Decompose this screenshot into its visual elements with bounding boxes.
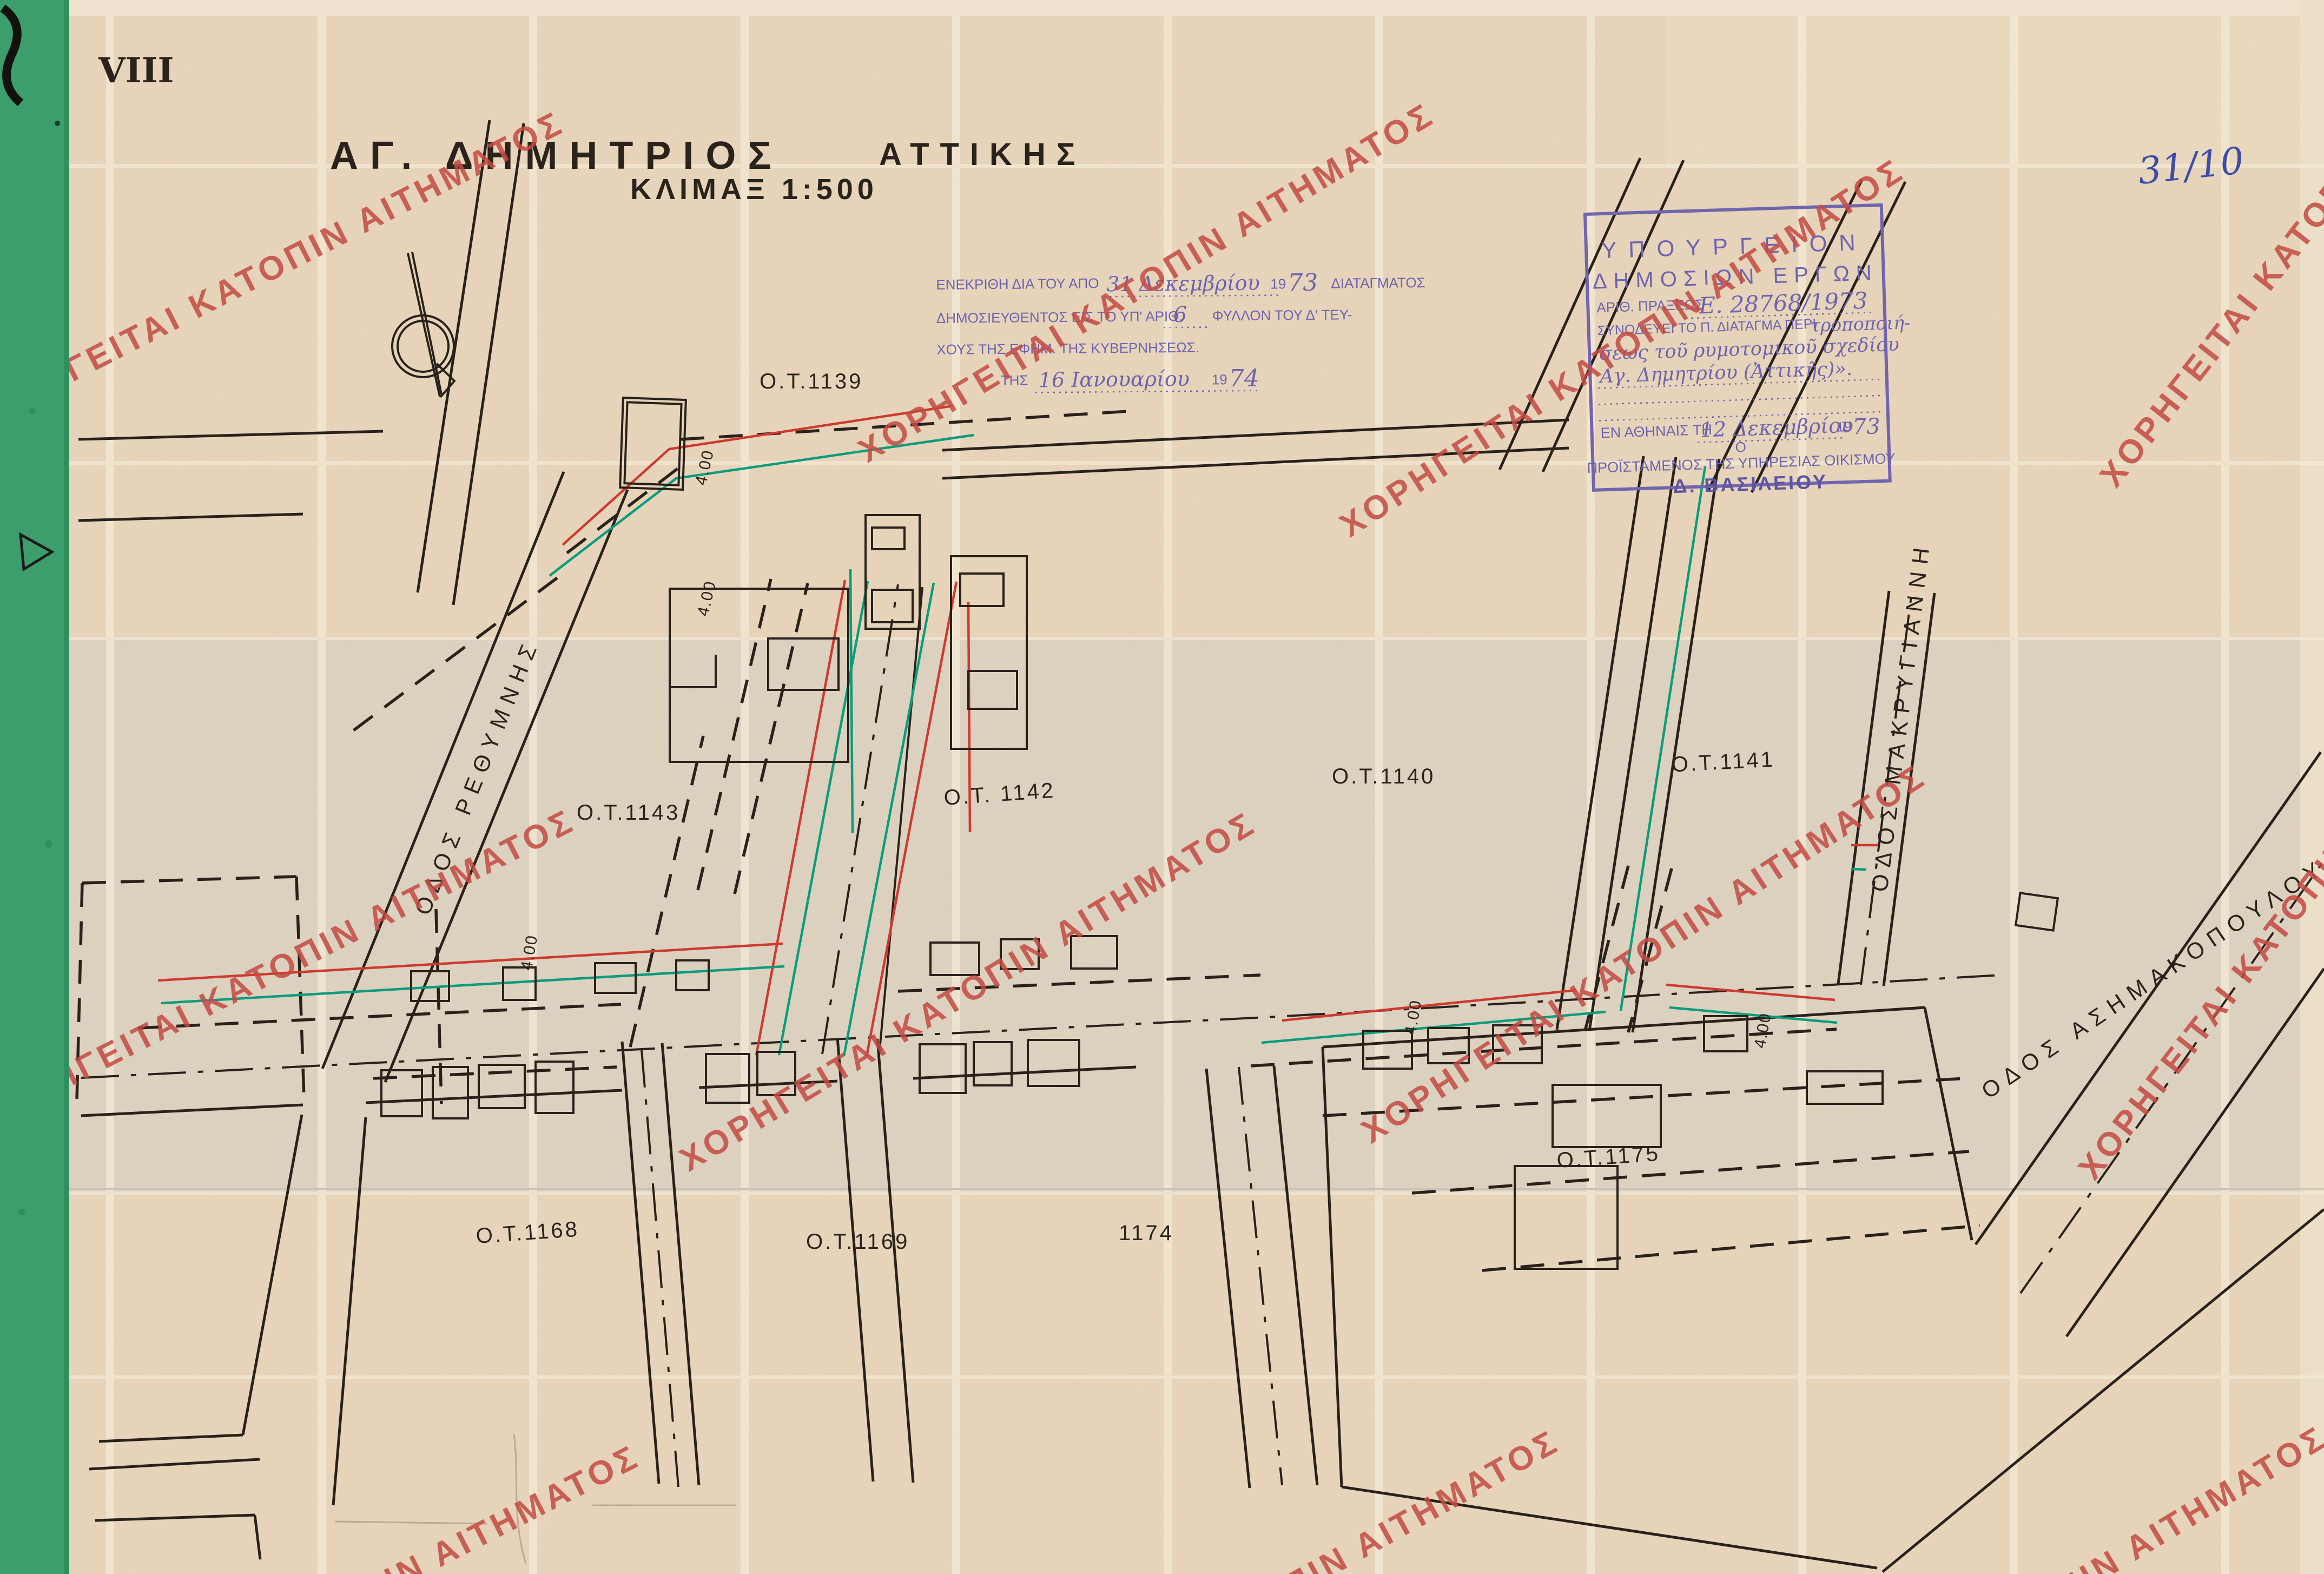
svg-text:τροποποιή-: τροποποιή- [1810, 312, 1911, 336]
block-label-1140: Ο.Τ.1140 [1332, 765, 1435, 788]
block-label-1169: Ο.Τ.1169 [806, 1230, 909, 1254]
approval-line1: ΕΝΕΚΡΙΘΗ ΔΙΑ ΤΟΥ ΑΠΟ [936, 275, 1099, 293]
block-label-1139: Ο.Τ.1139 [760, 370, 863, 393]
plan-sheet: VIII ΑΓ. ΔΗΜΗΤΡΙΟΣ ΑΤΤΙΚΗΣ ΚΛΙΜΑΞ 1:500 … [0, 0, 2324, 1574]
svg-text:19: 19 [1270, 275, 1286, 292]
binding-strip [0, 0, 69, 1574]
svg-text:73: 73 [1852, 414, 1880, 440]
svg-text:ΔΙΑΤΑΓΜΑΤΟΣ: ΔΙΑΤΑΓΜΑΤΟΣ [1331, 274, 1425, 292]
plan-canvas: VIII ΑΓ. ΔΗΜΗΤΡΙΟΣ ΑΤΤΙΚΗΣ ΚΛΙΜΑΞ 1:500 … [0, 0, 2324, 1574]
svg-text:16 Ιανουαρίου: 16 Ιανουαρίου [1039, 367, 1190, 392]
svg-text:74: 74 [1229, 365, 1259, 392]
block-label-1143: Ο.Τ.1143 [577, 801, 680, 825]
title-scale: ΚΛΙΜΑΞ 1:500 [630, 173, 878, 206]
sheet-number: VIII [98, 50, 174, 91]
svg-text:6: 6 [1173, 302, 1187, 327]
svg-text:19: 19 [1836, 419, 1852, 435]
svg-text:ΦΥΛΛΟΝ ΤΟΥ Δ' ΤΕΥ-: ΦΥΛΛΟΝ ΤΟΥ Δ' ΤΕΥ- [1212, 306, 1352, 324]
svg-text:12 Δεκεμβρίου: 12 Δεκεμβρίου [1700, 413, 1854, 442]
svg-text:73: 73 [1288, 269, 1318, 297]
title-region: ΑΤΤΙΚΗΣ [879, 137, 1086, 172]
svg-text:19: 19 [1212, 371, 1227, 387]
svg-text:Ο: Ο [1735, 439, 1746, 456]
block-label-1174: 1174 [1119, 1221, 1174, 1245]
